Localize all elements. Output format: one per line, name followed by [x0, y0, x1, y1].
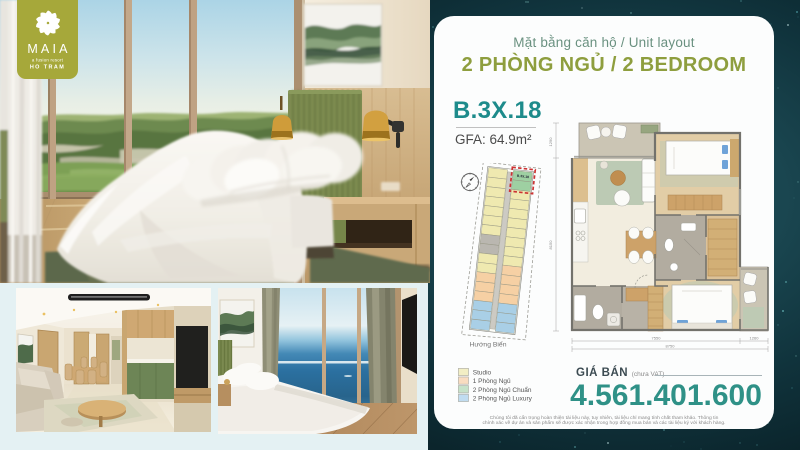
- svg-text:7550: 7550: [652, 336, 662, 341]
- svg-text:1290: 1290: [548, 137, 553, 147]
- svg-text:8750: 8750: [666, 344, 676, 349]
- svg-text:1260: 1260: [750, 336, 760, 341]
